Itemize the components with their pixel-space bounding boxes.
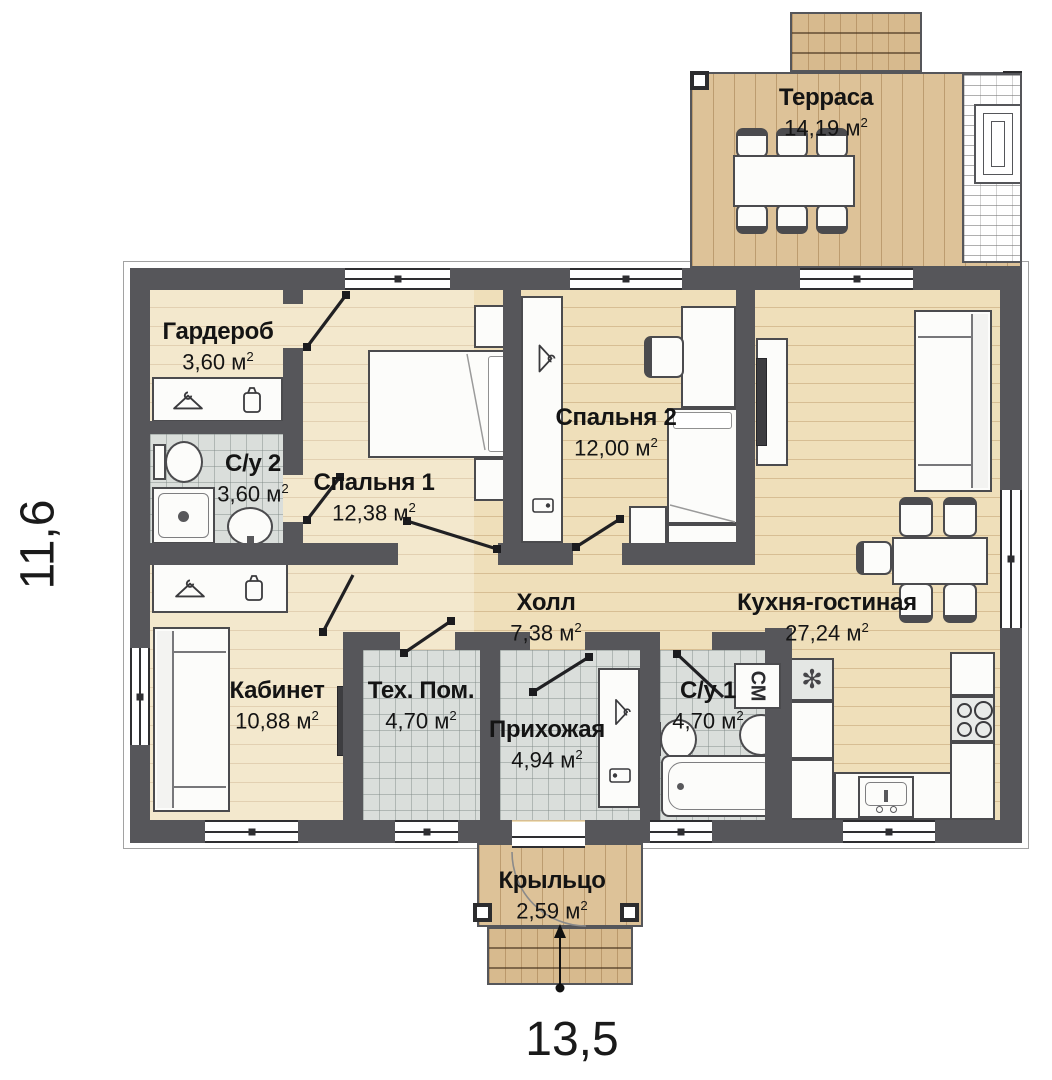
wall [498,543,573,565]
wall [622,543,755,565]
room-name: Кухня-гостиная [737,591,917,615]
wall [1000,628,1022,843]
room-label-bedroom1: Спальня 1 12,38 м2 [314,471,435,524]
wall [150,421,283,434]
room-area: 3,60 м2 [162,350,273,373]
hanger-icon [172,390,204,417]
drawer-icon [609,768,631,788]
wall [343,632,363,820]
window [395,820,458,843]
dining-chair [856,541,892,575]
pillow [673,412,732,429]
burner [974,701,993,720]
room-label-bathroom1: С/у 1 4,70 м2 [672,679,743,732]
nightstand [629,506,667,546]
room-name: Кабинет [229,679,324,703]
wall [450,268,570,290]
burner [957,703,972,718]
drawer-icon [532,498,554,518]
bathtub-inner [668,762,777,810]
room-area: 4,70 м2 [672,709,743,732]
dining-chair [943,497,977,537]
window [570,268,682,290]
burner [957,722,972,737]
room-name: Гардероб [162,320,273,344]
shower-tray [152,487,215,544]
room-name: Холл [510,591,581,615]
dining-table [892,537,988,585]
room-area: 4,70 м2 [368,709,475,732]
window [1000,490,1022,628]
room-label-wardrobe: Гардероб 3,60 м2 [162,320,273,373]
window [205,820,298,843]
office-sofa [153,627,230,812]
toilet-icon [165,441,203,483]
room-name: Спальня 1 [314,471,435,495]
drain-icon [677,783,684,790]
wall [150,543,398,565]
room-label-entry: Прихожая 4,94 м2 [489,718,605,771]
room-name: Тех. Пом. [368,679,475,703]
sofa-armrest [173,631,226,653]
wall [283,288,303,304]
room-area: 10,88 м2 [229,709,324,732]
room-name: С/у 1 [672,679,743,703]
porch-column [473,903,492,922]
plant-stand: ✻ [790,658,834,701]
room-area: 12,38 м2 [314,501,435,524]
hanger-icon [532,344,557,374]
room-area: 14,19 м2 [779,116,873,139]
dining-chair [943,583,977,623]
room-label-bedroom2: Спальня 2 12,00 м2 [556,406,677,459]
wall [1000,268,1022,490]
wardrobe-cabinet [152,377,283,422]
porch-steps [487,927,633,985]
tv-living-room [756,358,767,446]
bed [368,350,510,458]
wall [712,820,843,843]
sofa-back [971,314,988,488]
burner [975,721,992,738]
wall [298,820,395,843]
window [843,820,935,843]
room-area: 3,60 м2 [217,482,288,505]
terrace-steps [790,12,922,72]
hall-cabinet [152,563,288,613]
drain-icon [178,511,189,522]
bed-bench [667,524,738,544]
kitchen-counter [950,742,995,820]
wall [503,288,521,565]
desk [681,306,736,408]
room-name: Спальня 2 [556,406,677,430]
hanger-icon [174,578,206,605]
wall [585,820,650,843]
room-label-hall: Холл 7,38 м2 [510,591,581,644]
bed [667,408,738,524]
room-label-kitchen-living: Кухня-гостиная 27,24 м2 [737,591,917,644]
room-area: 27,24 м2 [737,621,917,644]
room-name: Терраса [779,86,873,110]
floor-plan: СМ ✻ [0,0,1052,1080]
terrace-chair [736,128,768,158]
room-area: 12,00 м2 [556,436,677,459]
terrace-chair [736,204,768,234]
kitchen-counter [790,759,834,820]
dimension-width: 13,5 [525,1012,618,1067]
wall [640,632,660,820]
terrace-chair [776,204,808,234]
room-label-office: Кабинет 10,88 м2 [229,679,324,732]
terrace-door-window [800,268,913,290]
room-name: Крыльцо [498,869,605,893]
room-area: 2,59 м2 [498,899,605,922]
room-label-terrace: Терраса 14,19 м2 [779,86,873,139]
wall [130,268,345,290]
terrace-table [733,155,855,207]
wall [130,268,150,648]
window [650,820,712,843]
wall [682,268,800,290]
sofa-armrest [918,314,972,338]
front-door [512,836,585,848]
window [130,648,150,745]
room-area: 4,94 м2 [489,748,605,771]
window [345,268,450,290]
room-name: Прихожая [489,718,605,742]
room-label-tech: Тех. Пом. 4,70 м2 [368,679,475,732]
wall [736,288,755,543]
tech-room-floor [363,650,480,820]
wall [935,820,1022,843]
wall [130,820,205,843]
dining-chair [899,497,933,537]
room-name: С/у 2 [217,452,288,476]
sink-icon [227,507,273,546]
sofa-armrest [173,786,226,808]
tap-icon [884,790,888,802]
desk-chair [644,336,684,378]
knob-icon [890,806,897,813]
terrace-chair [816,204,848,234]
knob-icon [876,806,883,813]
basket-icon [244,574,264,607]
terrace-column [690,71,709,90]
dimension-height: 11,6 [11,495,66,595]
room-label-bathroom2: С/у 2 3,60 м2 [217,452,288,505]
room-label-porch: Крыльцо 2,59 м2 [498,869,605,922]
wall [765,628,792,820]
sofa [914,310,992,492]
sofa-back [157,631,174,808]
basket-icon [242,386,262,419]
sofa-armrest [918,464,972,488]
stove-icon [950,696,995,742]
room-area: 7,38 м2 [510,621,581,644]
kitchen-sink-icon [858,776,914,818]
kitchen-counter [950,652,995,696]
hanger-icon [608,698,632,726]
kitchen-counter [790,701,834,759]
barbecue-oven-core [991,121,1005,167]
barbecue-oven [974,104,1022,184]
porch-column [620,903,639,922]
wall [458,820,512,843]
